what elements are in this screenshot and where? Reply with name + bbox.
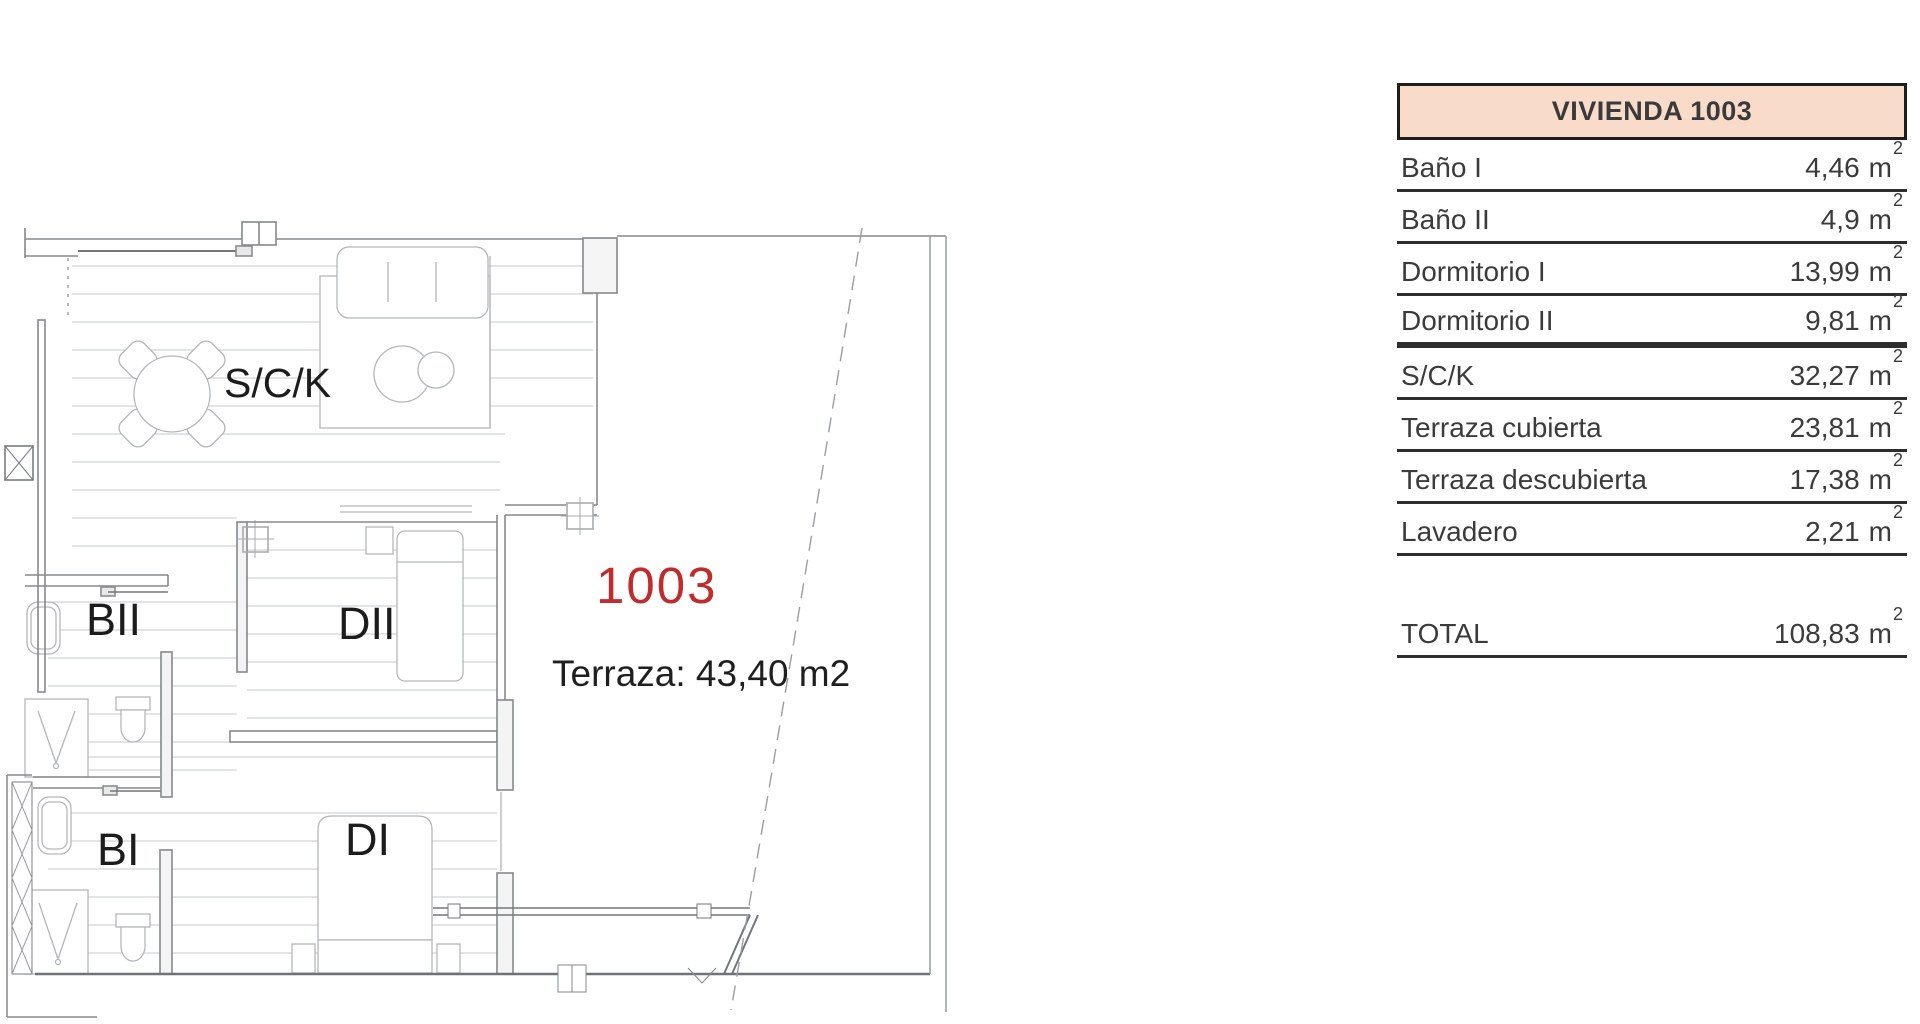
row-label: Baño I [1401, 152, 1482, 184]
row-value: 2,21m2 [1805, 516, 1903, 548]
dining-table [134, 356, 210, 432]
row-label: Baño II [1401, 204, 1490, 236]
table-total-row: TOTAL 108,83m2 [1397, 606, 1907, 658]
total-value: 108,83m2 [1774, 618, 1903, 650]
toilet-tank-banio2 [116, 697, 150, 710]
nightstand-dorm1-right [437, 944, 460, 973]
row-label: Dormitorio II [1401, 305, 1553, 337]
nightstand-dorm1-left [292, 944, 315, 973]
room-label-dorm2: DII [338, 601, 396, 646]
row-value: 9,81m2 [1805, 305, 1903, 337]
floor-plan: S/C/K BII DII BI DI 1003 Terraza: 43,40 … [0, 0, 970, 1024]
page: S/C/K BII DII BI DI 1003 Terraza: 43,40 … [0, 0, 1920, 1024]
table-row: Dormitorio II 9,81m2 [1397, 296, 1907, 348]
table-row: Baño I 4,46m2 [1397, 140, 1907, 192]
table-row: Lavadero 2,21m2 [1397, 504, 1907, 556]
terrace-area-note: Terraza: 43,40 m2 [552, 655, 850, 692]
row-value: 17,38m2 [1790, 464, 1903, 496]
total-label: TOTAL [1401, 618, 1489, 650]
row-value: 13,99m2 [1790, 256, 1903, 288]
toilet-bowl-banio2 [121, 710, 145, 742]
shower-banio2 [25, 699, 88, 777]
laundry-hatch-strip [12, 782, 32, 974]
table-row: Terraza descubierta 17,38m2 [1397, 452, 1907, 504]
table-row: Dormitorio I 13,99m2 [1397, 244, 1907, 296]
sofa [337, 247, 488, 318]
shower-banio1 [25, 890, 88, 974]
room-label-sck: S/C/K [224, 363, 331, 404]
row-value: 4,9m2 [1821, 204, 1903, 236]
toilet-bowl-banio1 [121, 927, 145, 961]
floor-plan-drawing [0, 0, 970, 1024]
table-row: S/C/K 32,27m2 [1397, 348, 1907, 400]
kitchen-sink-small [418, 352, 454, 388]
row-label: Lavadero [1401, 516, 1518, 548]
areas-table: VIVIENDA 1003 Baño I 4,46m2 Baño II 4,9m… [1397, 83, 1907, 658]
unit-number-label: 1003 [596, 560, 717, 611]
row-label: Dormitorio I [1401, 256, 1546, 288]
bed-dorm2 [397, 531, 463, 681]
toilet-tank-banio1 [116, 914, 150, 927]
row-value: 23,81m2 [1790, 412, 1903, 444]
row-value: 32,27m2 [1790, 360, 1903, 392]
table-title: VIVIENDA 1003 [1397, 83, 1907, 140]
row-label: Terraza cubierta [1401, 412, 1602, 444]
nightstand-dorm2 [366, 527, 393, 554]
row-label: S/C/K [1401, 360, 1474, 392]
room-label-dorm1: DI [345, 817, 390, 862]
table-gap [1397, 556, 1907, 606]
room-label-banio2: BII [86, 597, 141, 642]
table-row: Terraza cubierta 23,81m2 [1397, 400, 1907, 452]
row-value: 4,46m2 [1805, 152, 1903, 184]
room-label-banio1: BI [97, 827, 140, 872]
row-label: Terraza descubierta [1401, 464, 1647, 496]
plot-boundary-dashed [731, 228, 862, 1010]
table-row: Baño II 4,9m2 [1397, 192, 1907, 244]
